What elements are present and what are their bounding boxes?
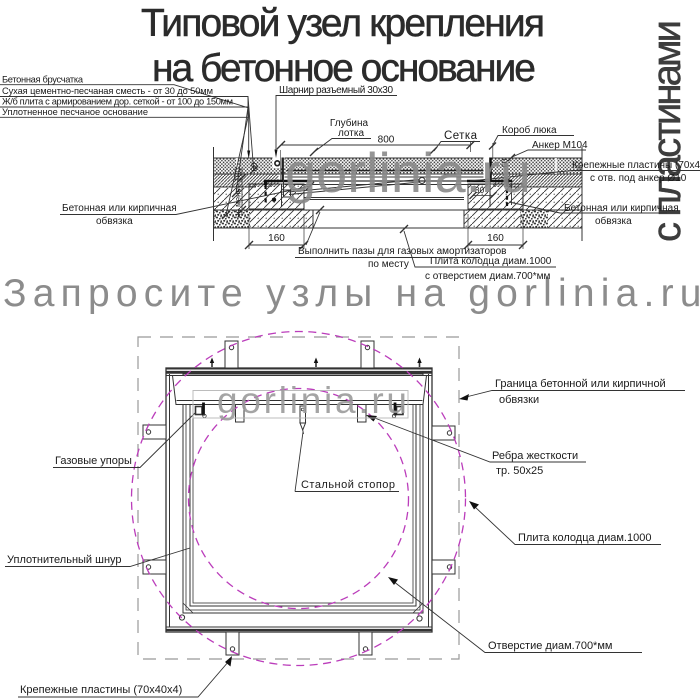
svg-text:Анкер М104: Анкер М104	[532, 140, 588, 151]
svg-text:не менее 100: не менее 100	[234, 167, 243, 217]
svg-text:Ребра жесткости: Ребра жесткости	[492, 450, 578, 462]
svg-text:по месту: по месту	[368, 259, 409, 270]
svg-text:обвязки: обвязки	[499, 394, 539, 406]
svg-text:Запросите узлы на gorlinia.ru: Запросите узлы на gorlinia.ru	[3, 272, 700, 315]
svg-text:Стальной стопор: Стальной стопор	[301, 479, 395, 491]
svg-text:Типовой узел крепления: Типовой узел крепления	[141, 2, 545, 45]
svg-text:Отверстие диам.700*мм: Отверстие диам.700*мм	[488, 640, 612, 652]
svg-text:Сухая цементно-песчаная сместь: Сухая цементно-песчаная сместь - от 30 д…	[2, 86, 213, 96]
svg-text:Крепежные пластины (70х40х4): Крепежные пластины (70х40х4)	[20, 684, 182, 696]
svg-text:Бетонная или кирпичная: Бетонная или кирпичная	[564, 203, 679, 214]
svg-text:Уплотнительный шнур: Уплотнительный шнур	[7, 554, 122, 566]
svg-text:Плита колодца диам.1000: Плита колодца диам.1000	[518, 532, 651, 544]
svg-text:на бетонное основание: на бетонное основание	[152, 47, 536, 90]
svg-text:с отверстием диам.700*мм: с отверстием диам.700*мм	[425, 271, 550, 282]
svg-text:160: 160	[487, 233, 504, 244]
svg-text:с отв. под анкер Ø10: с отв. под анкер Ø10	[590, 173, 687, 184]
svg-text:Ж/б плита с армированием дор.: Ж/б плита с армированием дор. сеткой - о…	[2, 97, 233, 107]
svg-text:60: 60	[250, 162, 259, 171]
svg-text:gorlinia.ru: gorlinia.ru	[285, 141, 531, 204]
svg-text:обвязка: обвязка	[595, 215, 632, 227]
svg-text:Плита колодца диам.1000: Плита колодца диам.1000	[430, 256, 552, 267]
svg-text:gorlinia.ru: gorlinia.ru	[217, 380, 407, 421]
svg-text:Бетонная брусчатка: Бетонная брусчатка	[2, 75, 84, 85]
svg-text:Шарнир разъемный 30х30: Шарнир разъемный 30х30	[279, 85, 393, 96]
svg-text:Короб люка: Короб люка	[502, 124, 557, 136]
svg-text:Крепежные пластины (70х40х4): Крепежные пластины (70х40х4)	[572, 160, 700, 171]
svg-text:Газовые упоры: Газовые упоры	[55, 455, 132, 467]
svg-text:тр. 50х25: тр. 50х25	[496, 465, 543, 477]
svg-text:Граница бетонной или кирпичной: Граница бетонной или кирпичной	[495, 378, 666, 390]
svg-text:160: 160	[268, 233, 285, 244]
svg-text:Бетонная или кирпичная: Бетонная или кирпичная	[62, 203, 177, 214]
svg-text:обвязка: обвязка	[96, 215, 133, 227]
svg-text:Уплотненное песчаное основание: Уплотненное песчаное основание	[2, 107, 148, 117]
svg-text:лотка: лотка	[338, 128, 364, 139]
